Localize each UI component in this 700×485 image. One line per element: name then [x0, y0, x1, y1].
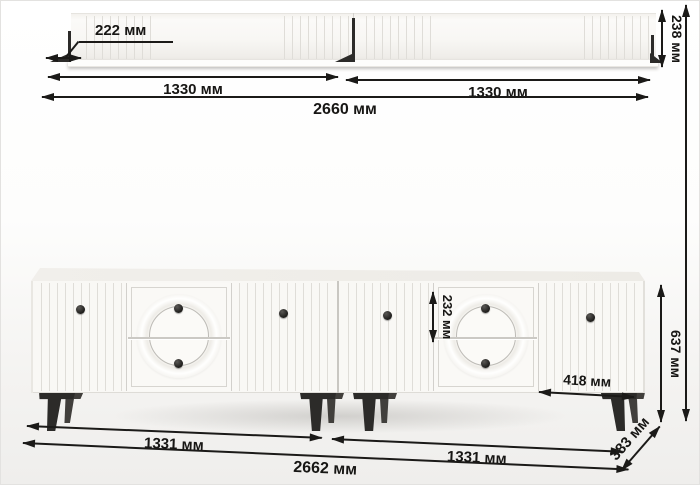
- dim-line: [661, 10, 663, 67]
- shelf-bottom-edge: [68, 60, 658, 67]
- shelf-fluting-center-left: [277, 16, 351, 59]
- door-fluting: [232, 283, 335, 391]
- dim-line: [346, 79, 650, 81]
- dim-shelf-height: 238 мм: [656, 9, 668, 68]
- dim-shelf-total-width-label: 2660 мм: [313, 101, 377, 119]
- dim-line: [685, 5, 687, 421]
- dim-shelf-right-section: 1330 мм: [345, 74, 651, 86]
- furniture-dimension-diagram: 222 мм 1330 мм 1330 мм 2660 мм 238 мм: [0, 0, 700, 485]
- left-unit-drawer-stack: [127, 283, 231, 391]
- left-unit-left-door-knob: [76, 305, 85, 314]
- door-fluting: [34, 283, 126, 391]
- dim-line: [660, 285, 662, 422]
- dim-shelf-total-width: 2660 мм: [41, 91, 649, 103]
- cabinet-top-face: [31, 268, 645, 281]
- leader-line-horizontal: [79, 41, 173, 43]
- left-unit-left-door: [34, 283, 126, 391]
- left-unit-top-drawer-knob: [174, 304, 183, 313]
- dim-cabinet-total-width-label: 2662 мм: [293, 459, 357, 480]
- drawer-divider: [128, 337, 230, 339]
- dim-cabinet-height: 637 мм: [655, 284, 667, 423]
- dim-shelf-bracket-offset-arrow: [45, 52, 82, 64]
- left-unit-right-door-knob: [279, 309, 288, 318]
- dim-door-width-label: 418 мм: [563, 371, 612, 389]
- dim-shelf-bracket-offset-label: 222 мм: [95, 22, 146, 39]
- door-fluting: [341, 283, 433, 391]
- cabinet-left-unit: [31, 281, 338, 393]
- left-unit-right-door: [232, 283, 335, 391]
- right-unit-left-door-knob: [383, 311, 392, 320]
- right-unit-left-door: [341, 283, 433, 391]
- wall-shelf: [71, 13, 656, 61]
- dim-line: [539, 391, 634, 398]
- dim-cabinet-height-label: 637 мм: [668, 330, 684, 378]
- tv-cabinet: [31, 281, 645, 393]
- drawer-ring-outline: [149, 306, 209, 366]
- right-unit-right-door-knob: [586, 313, 595, 322]
- right-unit-top-drawer-knob: [481, 304, 490, 313]
- dim-line: [42, 96, 648, 98]
- dim-line: [432, 292, 434, 342]
- left-unit-bottom-drawer-knob: [174, 359, 183, 368]
- dim-top-drawer-height: 232 мм: [427, 291, 439, 343]
- shelf-fluting-center-right: [359, 16, 433, 59]
- dim-shelf-left-section: 1330 мм: [47, 71, 339, 83]
- cabinet-leg-group-center-left: [300, 393, 344, 433]
- cabinet-leg-group-center-right: [353, 393, 397, 433]
- dim-line: [46, 57, 81, 59]
- shelf-fluting-right: [577, 16, 651, 59]
- dim-line: [48, 76, 338, 78]
- drawer-ring-outline: [456, 306, 516, 366]
- dim-top-drawer-height-label: 232 мм: [440, 295, 455, 340]
- right-unit-bottom-drawer-knob: [481, 359, 490, 368]
